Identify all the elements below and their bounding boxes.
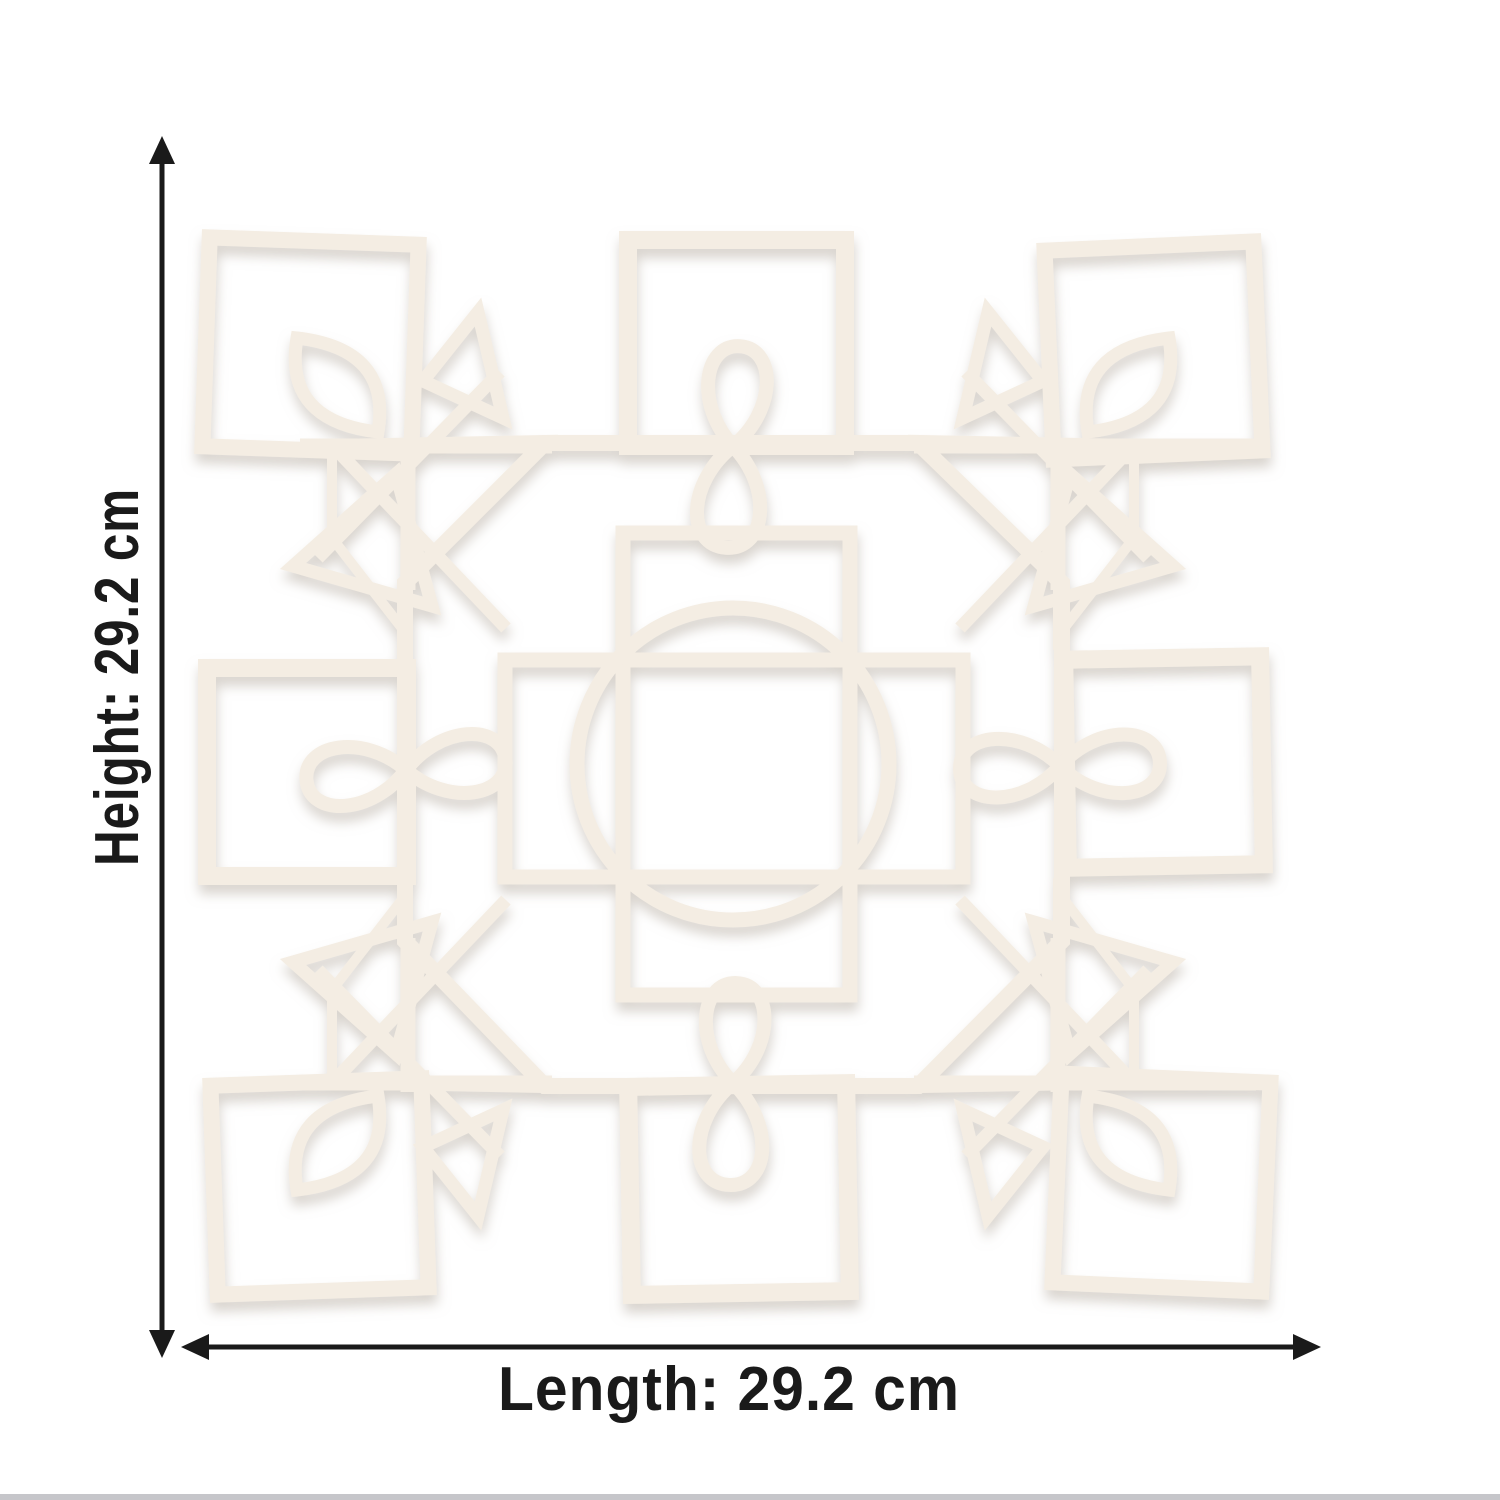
leaf-cutout-bottom-right bbox=[1086, 1096, 1171, 1190]
scene: Height: 29.2 cm Length: 29.2 cm bbox=[0, 0, 1500, 1500]
corner-square-top-right bbox=[1045, 242, 1263, 460]
arrowhead-down-icon bbox=[149, 1330, 175, 1358]
corner-diagonal-lines bbox=[318, 372, 1148, 1156]
leaf-cutout-top-right bbox=[1086, 338, 1171, 432]
infinity-knots bbox=[303, 344, 1160, 1186]
leaf-cutout-bottom-left bbox=[295, 1096, 380, 1190]
leaf-cutout-top-left bbox=[295, 338, 380, 432]
arrowhead-up-icon bbox=[149, 136, 175, 164]
arrowhead-left-icon bbox=[181, 1334, 209, 1360]
corner-squares bbox=[202, 237, 1270, 1294]
height-dimension-arrow bbox=[149, 136, 175, 1358]
product-dimension-image: Height: 29.2 cm Length: 29.2 cm bbox=[0, 0, 1500, 1500]
bottom-edge-strip bbox=[0, 1494, 1500, 1500]
height-label: Height: 29.2 cm bbox=[83, 488, 152, 866]
length-label: Length: 29.2 cm bbox=[498, 1355, 960, 1424]
arrowhead-right-icon bbox=[1293, 1334, 1321, 1360]
leaf-cutouts bbox=[295, 338, 1171, 1190]
kolam-cutout-board bbox=[202, 237, 1270, 1294]
dimension-annotations: Height: 29.2 cm Length: 29.2 cm bbox=[83, 136, 1321, 1424]
edge-squares bbox=[207, 240, 1264, 1295]
